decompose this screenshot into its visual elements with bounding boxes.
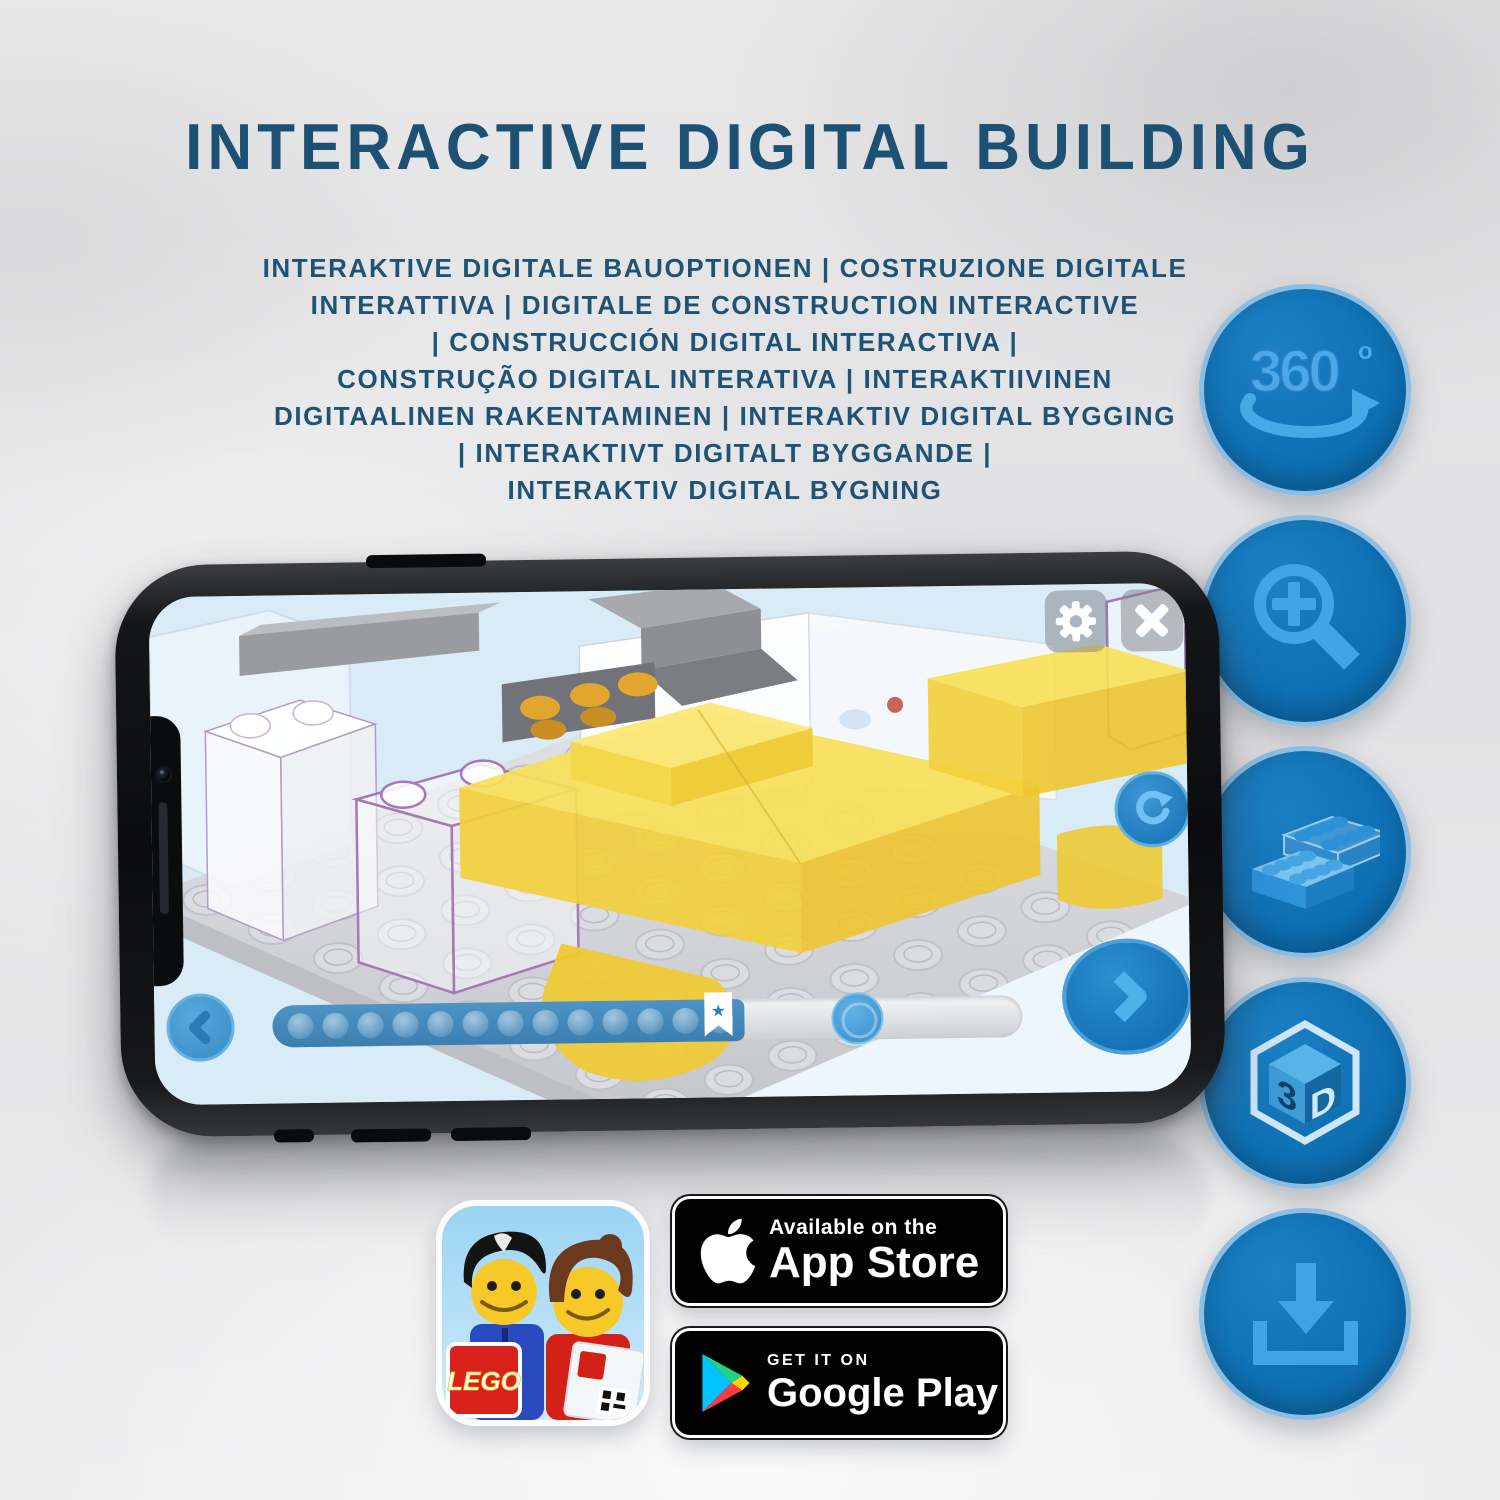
chevron-left-icon xyxy=(183,1010,217,1044)
degree-mark: o xyxy=(1358,338,1373,365)
feature-brick xyxy=(1199,746,1411,958)
star-icon: ★ xyxy=(711,1001,727,1020)
settings-button[interactable] xyxy=(1045,590,1108,653)
lego-logo: LEGO xyxy=(447,1344,521,1416)
lego-marketing-page: INTERACTIVE DIGITAL BUILDING INTERAKTIVE… xyxy=(0,0,1500,1500)
download-icon xyxy=(1230,1239,1380,1389)
google-play-name: Google Play xyxy=(767,1371,998,1415)
earpiece-speaker xyxy=(158,802,169,914)
progress-dot xyxy=(672,1008,698,1034)
minifig-girl xyxy=(546,1234,644,1420)
360-label: 360 xyxy=(1250,339,1339,404)
lego-app-artwork: LEGO xyxy=(442,1206,644,1420)
phone-notch xyxy=(149,716,184,986)
app-store-tagline: Available on the xyxy=(769,1216,979,1240)
chevron-right-icon xyxy=(1100,969,1155,1024)
front-camera xyxy=(157,768,170,781)
page-title: INTERACTIVE DIGITAL BUILDING xyxy=(0,111,1500,185)
progress-dot xyxy=(427,1011,453,1037)
progress-fill xyxy=(272,999,745,1048)
phone-frame: ★ xyxy=(114,550,1226,1137)
progress-dot xyxy=(637,1008,663,1034)
progress-dot xyxy=(567,1009,593,1035)
feature-360-rotation: 360 o xyxy=(1199,284,1411,496)
phone-power-button[interactable] xyxy=(366,554,486,569)
feature-zoom xyxy=(1199,515,1411,727)
app-screen: ★ xyxy=(149,583,1192,1105)
rotate-icon xyxy=(1126,783,1179,836)
bookmark-star-marker[interactable]: ★ xyxy=(704,992,733,1038)
subtitle-line: INTERAKTIV DIGITAL BYGNING xyxy=(40,472,1410,509)
3d-cube-icon: 3 D xyxy=(1230,1008,1380,1158)
phone: ★ xyxy=(114,550,1226,1137)
close-button[interactable] xyxy=(1120,589,1183,652)
app-store-badge[interactable]: Available on the App Store xyxy=(672,1196,1006,1306)
lego-logo-text: LEGO xyxy=(447,1366,521,1396)
progress-dot xyxy=(357,1012,383,1038)
phone-mute-switch[interactable] xyxy=(274,1129,314,1143)
subtitle-line: INTERATTIVA | DIGITALE DE CONSTRUCTION I… xyxy=(40,287,1410,324)
progress-dot xyxy=(322,1013,348,1039)
lego-app-icon[interactable]: LEGO xyxy=(436,1200,650,1426)
progress-dot xyxy=(602,1009,628,1035)
progress-dot xyxy=(392,1012,418,1038)
google-play-badge[interactable]: GET IT ON Google Play xyxy=(672,1328,1006,1438)
instruction-card xyxy=(564,1342,644,1420)
app-store-name: App Store xyxy=(769,1240,979,1286)
cube-3-label: 3 xyxy=(1277,1072,1297,1121)
subtitle-line: | INTERAKTIVT DIGITALT BYGGANDE | xyxy=(40,435,1410,472)
google-play-tagline: GET IT ON xyxy=(767,1351,998,1371)
google-play-icon xyxy=(697,1350,755,1416)
apple-icon xyxy=(697,1214,759,1288)
feature-3d-view: 3 D xyxy=(1199,977,1411,1189)
next-step-button[interactable] xyxy=(1061,938,1191,1056)
progress-dot xyxy=(287,1013,313,1039)
brick-icon xyxy=(1230,777,1380,927)
progress-dot xyxy=(532,1010,558,1036)
subtitle-line: INTERAKTIVE DIGITALE BAUOPTIONEN | COSTR… xyxy=(40,250,1410,287)
360-rotation-icon: 360 o xyxy=(1220,315,1390,465)
phone-volume-down-button[interactable] xyxy=(451,1127,531,1141)
close-icon xyxy=(1129,597,1176,644)
feature-download xyxy=(1199,1208,1411,1420)
progress-dot xyxy=(462,1011,488,1037)
zoom-in-icon xyxy=(1230,546,1380,696)
phone-volume-up-button[interactable] xyxy=(351,1128,431,1142)
progress-dot xyxy=(497,1010,523,1036)
gear-icon xyxy=(1052,597,1101,646)
